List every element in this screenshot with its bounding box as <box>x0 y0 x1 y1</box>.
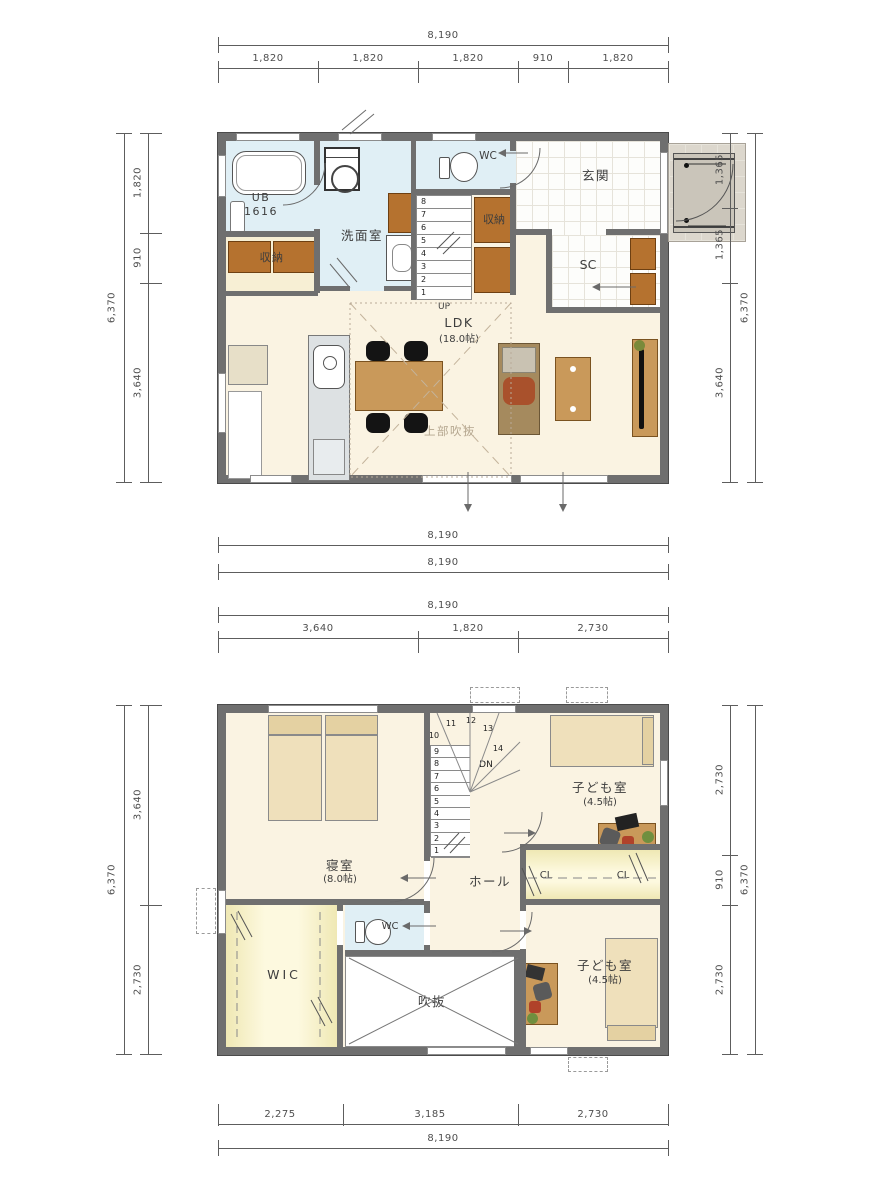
wall <box>314 141 320 185</box>
dim-f2-right-total: 6,370 <box>739 848 752 912</box>
dim-line <box>755 133 756 483</box>
dim-tick <box>668 631 669 653</box>
exterior-dashed-outline <box>568 1057 608 1072</box>
window <box>268 705 378 713</box>
dim-tick <box>722 705 738 706</box>
wall <box>226 291 318 296</box>
tv <box>639 349 644 429</box>
room-label-senmenshitsu: 洗面室 <box>322 225 402 244</box>
dim-tick <box>140 905 162 906</box>
dim-tick <box>318 61 319 83</box>
window <box>530 1047 568 1055</box>
stair-step: 2 <box>431 833 470 845</box>
kitchen-sink <box>313 345 345 389</box>
dim-f2-bottom-seg0: 2,275 <box>240 1109 320 1120</box>
counter-cabinet <box>228 345 268 385</box>
door-opening <box>520 911 526 949</box>
wall <box>345 950 520 956</box>
entrance-door-opening <box>660 152 668 234</box>
dim-line <box>755 705 756 1055</box>
bathtub <box>232 151 306 195</box>
room-label-wc-1f: WC <box>458 150 518 162</box>
room-label-genkan: 玄関 <box>556 165 636 184</box>
tv-board <box>632 339 658 437</box>
door-swing-mark <box>342 110 374 134</box>
shoe-cabinet <box>630 238 656 270</box>
window <box>218 890 226 934</box>
window <box>660 760 668 806</box>
wall <box>546 229 552 307</box>
dining-table <box>355 361 443 411</box>
stair-step: 1 <box>431 845 470 857</box>
bed <box>268 735 322 821</box>
bed <box>325 735 378 821</box>
plan-floor2: 寝室 (8.0帖) 9 8 7 6 5 4 3 2 1 10 11 12 13 … <box>218 705 668 1055</box>
room-label-ldk: LDK <box>409 315 509 330</box>
wall <box>520 844 526 905</box>
wall <box>226 231 318 237</box>
room-label-ldk-size: (18.0帖) <box>409 330 509 345</box>
bed <box>550 715 654 767</box>
dim-f1-left-total: 6,370 <box>106 276 119 340</box>
dim-line <box>218 45 668 46</box>
dim-f2-bottom-seg2: 2,730 <box>553 1109 633 1120</box>
wall <box>226 899 337 905</box>
dim-tick <box>747 133 763 134</box>
window <box>218 373 226 433</box>
dim-tick <box>140 705 162 706</box>
coffee-table <box>555 357 591 421</box>
dim-tick <box>722 283 738 284</box>
dim-tick <box>747 482 763 483</box>
storage-unit <box>228 391 262 479</box>
dim-tick <box>218 61 219 83</box>
wall <box>520 899 660 905</box>
dim-tick <box>218 37 219 53</box>
dim-f2-left-total: 6,370 <box>106 848 119 912</box>
exterior-dashed-outline <box>196 888 216 934</box>
door-opening <box>424 913 430 945</box>
wall <box>343 899 424 905</box>
dim-tick <box>668 607 669 623</box>
window <box>422 475 512 483</box>
dim-tick <box>343 1104 344 1126</box>
dim-tick <box>218 1104 219 1126</box>
exterior-dashed-outline <box>470 687 520 703</box>
chair-cushion <box>529 1001 541 1013</box>
dim-f1-right-seg1: 1,365 <box>714 213 727 277</box>
dim-tick <box>116 1054 132 1055</box>
dim-tick <box>116 133 132 134</box>
room-genkan <box>516 141 660 235</box>
dim-f1-top-seg4: 1,820 <box>578 53 658 64</box>
plant <box>634 340 645 351</box>
dim-f1-top-seg0: 1,820 <box>228 53 308 64</box>
toilet-1f <box>439 157 450 179</box>
dim-tick <box>722 133 738 134</box>
flow-arrow-head <box>464 504 472 512</box>
dim-tick <box>518 1104 519 1126</box>
stair-step: 5 <box>417 235 471 248</box>
dim-line <box>218 1124 668 1125</box>
dim-line <box>218 68 668 69</box>
stair-dn-label: DN <box>476 760 496 770</box>
stair-up-label: UP <box>416 302 472 312</box>
stair-step: 11 <box>441 719 461 728</box>
wall <box>510 183 516 295</box>
dim-f1-right-total: 6,370 <box>739 276 752 340</box>
dim-line <box>148 133 149 483</box>
dim-tick <box>668 537 669 553</box>
dim-line <box>218 638 668 639</box>
kitchen-stove <box>313 439 345 475</box>
dining-chair <box>366 341 390 361</box>
dim-tick <box>140 482 162 483</box>
stair-step: 6 <box>431 783 470 795</box>
dining-chair <box>366 413 390 433</box>
dim-line <box>730 133 731 483</box>
window <box>432 133 476 141</box>
stair-step: 1 <box>417 287 471 300</box>
dim-f2-left-seg0: 3,640 <box>132 773 145 837</box>
window <box>218 155 226 197</box>
dim-f1-left-seg1: 910 <box>132 226 145 290</box>
wall <box>606 229 660 235</box>
plant <box>642 831 654 843</box>
window <box>338 133 382 141</box>
void-above-label: 上部吹抜 <box>390 423 510 439</box>
room-label-shinshitsu-size: (8.0帖) <box>295 870 385 885</box>
room-label-fukinuke: 吹抜 <box>397 991 467 1010</box>
bed-headboard <box>268 715 322 735</box>
stair-step: 9 <box>431 746 470 758</box>
wall <box>411 189 516 195</box>
room-label-ub-size: 1616 <box>226 205 296 218</box>
window <box>236 133 300 141</box>
stair-step: 4 <box>417 248 471 261</box>
dim-tick <box>668 1104 669 1126</box>
dim-f1-right-seg2: 3,640 <box>714 351 727 415</box>
dim-tick <box>747 705 763 706</box>
dim-f1-top-total: 8,190 <box>393 30 493 41</box>
room-label-shunou-left: 収納 <box>232 249 312 265</box>
room-label-kodomo-top-size: (4.5帖) <box>545 793 655 808</box>
dim-line <box>218 545 668 546</box>
dim-tick <box>747 1054 763 1055</box>
toilet-2f <box>355 921 365 943</box>
dim-tick <box>140 1054 162 1055</box>
dim-tick <box>218 607 219 623</box>
stair-step: 3 <box>431 820 470 832</box>
room-label-sc: SC <box>558 257 618 272</box>
stair-step: 7 <box>431 771 470 783</box>
dim-f1-top-seg1: 1,820 <box>328 53 408 64</box>
dim-f2-right-seg2: 2,730 <box>714 948 727 1012</box>
stair-step: 6 <box>417 222 471 235</box>
staircase-1f: 8 7 6 5 4 3 2 1 <box>416 195 472 300</box>
wall <box>318 286 350 291</box>
dim-tick <box>140 133 162 134</box>
stair-step: 8 <box>417 196 471 209</box>
dim-tick <box>116 705 132 706</box>
stair-step: 2 <box>417 274 471 287</box>
dim-tick <box>116 482 132 483</box>
dim-f2-top-seg0: 3,640 <box>278 623 358 634</box>
room-label-kodomo-bottom-size: (4.5帖) <box>550 971 660 986</box>
dim-line <box>218 1148 668 1149</box>
dim-tick <box>518 631 519 653</box>
bed-headboard <box>642 717 654 765</box>
dim-line <box>124 133 125 483</box>
wall <box>411 195 416 300</box>
dim-f2-top-total: 8,190 <box>393 600 493 611</box>
dim-f2-right-seg1: 910 <box>714 848 727 912</box>
dim-tick <box>722 208 738 209</box>
dim-tick <box>668 37 669 53</box>
dim-f2-bottom-total: 8,190 <box>393 1133 493 1144</box>
dim-f2-top-seg1: 1,820 <box>428 623 508 634</box>
dim-f2-bottom-seg1: 3,185 <box>390 1109 470 1120</box>
dim-f2-top-seg2: 2,730 <box>553 623 633 634</box>
stair-step: 8 <box>431 758 470 770</box>
bed-headboard <box>325 715 378 735</box>
dim-f1-bottom-inner: 8,190 <box>393 557 493 568</box>
dim-tick <box>668 1140 669 1156</box>
dim-f1-top-seg3: 910 <box>503 53 583 64</box>
dim-tick <box>568 61 569 83</box>
dim-line <box>218 572 668 573</box>
bathtub-inner <box>236 155 302 191</box>
dim-f1-top-seg2: 1,820 <box>428 53 508 64</box>
dim-tick <box>218 537 219 553</box>
dim-line <box>148 705 149 1055</box>
window <box>250 475 292 483</box>
dim-f1-right-seg0: 1,365 <box>714 138 727 202</box>
exterior-dashed-outline <box>566 687 608 703</box>
wall <box>546 307 660 313</box>
stair-step: 13 <box>478 724 498 733</box>
dim-line <box>730 705 731 1055</box>
wall <box>424 713 430 857</box>
room-label-wc-2f: WC <box>370 921 410 932</box>
dim-line <box>218 615 668 616</box>
dim-tick <box>722 1054 738 1055</box>
shoe-cabinet <box>630 273 656 305</box>
wall <box>510 141 516 151</box>
dim-f1-left-seg2: 3,640 <box>132 351 145 415</box>
dim-line <box>124 705 125 1055</box>
plant <box>527 1013 538 1024</box>
dim-tick <box>218 1140 219 1156</box>
plan-floor1: UB 1616 収納 洗面室 WC 8 7 6 5 4 3 2 <box>218 133 668 483</box>
door-opening <box>337 911 343 945</box>
dim-tick <box>218 631 219 653</box>
dim-tick <box>218 564 219 580</box>
stair-step: 5 <box>431 796 470 808</box>
window <box>520 475 608 483</box>
dim-tick <box>418 631 419 653</box>
window <box>427 1047 506 1055</box>
dim-f2-left-seg1: 2,730 <box>132 948 145 1012</box>
dim-tick <box>722 482 738 483</box>
wall <box>411 141 416 189</box>
room-label-ub: UB <box>226 191 296 204</box>
stair-step: 3 <box>417 261 471 274</box>
dim-tick <box>418 61 419 83</box>
stair-step: 7 <box>417 209 471 222</box>
floor-plan-drawing: UB 1616 収納 洗面室 WC 8 7 6 5 4 3 2 <box>0 0 886 1190</box>
room-label-wic: WIC <box>239 967 329 982</box>
closet-label-cl-right: CL <box>609 870 637 881</box>
dim-f2-right-seg0: 2,730 <box>714 748 727 812</box>
sofa-seat <box>503 377 535 405</box>
dim-f1-bottom-outer: 8,190 <box>393 530 493 541</box>
staircase-2f: 9 8 7 6 5 4 3 2 1 <box>430 745 470 857</box>
bed-footboard <box>607 1025 656 1041</box>
sofa-cushion <box>502 347 536 373</box>
wall <box>314 229 320 293</box>
dim-tick <box>518 61 519 83</box>
window <box>472 705 516 713</box>
stair-step: 14 <box>488 744 508 753</box>
door-opening <box>424 861 430 901</box>
dim-f1-left-seg0: 1,820 <box>132 151 145 215</box>
flow-arrow-head <box>559 504 567 512</box>
stair-step: 4 <box>431 808 470 820</box>
dim-tick <box>668 61 669 83</box>
wall <box>520 844 660 850</box>
washing-machine <box>324 147 360 191</box>
dim-tick <box>668 564 669 580</box>
